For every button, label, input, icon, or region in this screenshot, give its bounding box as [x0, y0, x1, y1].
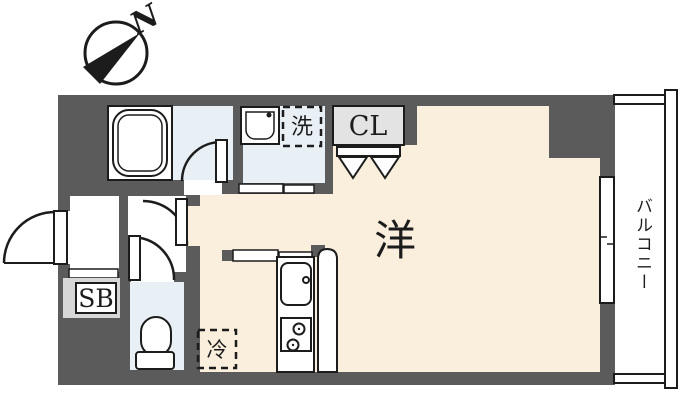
washroom-sliding-door-a — [239, 184, 283, 193]
bathtub-inner — [118, 115, 162, 171]
toilet-tank — [136, 352, 174, 369]
closet-label: CL — [349, 111, 388, 142]
toilet-door-leaf — [129, 236, 140, 280]
sliding-window — [600, 177, 614, 303]
washer-space-label: 洗 — [291, 115, 313, 140]
floor-plan-page: N バルコニー 洋 洗 CL — [0, 0, 700, 405]
kitchen-counter — [277, 257, 314, 372]
stove-burner-top-dot — [298, 328, 300, 330]
entrance-door-swing — [4, 212, 55, 263]
washroom-sliding-door-b — [284, 185, 314, 193]
stove-burner-bottom-dot — [292, 344, 294, 346]
closet-rail — [337, 147, 400, 156]
room-door-opening — [186, 206, 200, 246]
balcony-window — [600, 177, 614, 303]
washbasin-faucet-icon — [267, 113, 272, 118]
compass: N — [83, 0, 167, 84]
entrance-step — [69, 269, 118, 278]
balcony: バルコニー — [614, 90, 677, 388]
refrigerator-space-label: 冷 — [207, 338, 228, 362]
balcony-label: バルコニー — [632, 197, 652, 292]
entrance-door-leaf — [54, 211, 67, 264]
living-room-label: 洋 — [374, 216, 416, 265]
entrance — [4, 211, 74, 264]
balcony-railing-bottom — [614, 374, 665, 383]
kitchen-wall-stub-left — [222, 250, 233, 261]
kitchen-end-panel — [318, 249, 337, 372]
balcony-railing-top — [614, 95, 665, 104]
shoe-box-label: SB — [78, 284, 114, 313]
entrance-hall-floor — [70, 196, 119, 272]
room-door-leaf — [176, 199, 187, 245]
washroom: 洗 — [239, 106, 325, 193]
toilet-bowl — [141, 317, 171, 356]
bathroom-door-leaf — [216, 140, 227, 182]
floor-plan-canvas: N バルコニー 洋 洗 CL — [0, 0, 700, 405]
kitchen-hatch-bar-a — [233, 250, 278, 261]
balcony-railing-right — [665, 90, 677, 388]
